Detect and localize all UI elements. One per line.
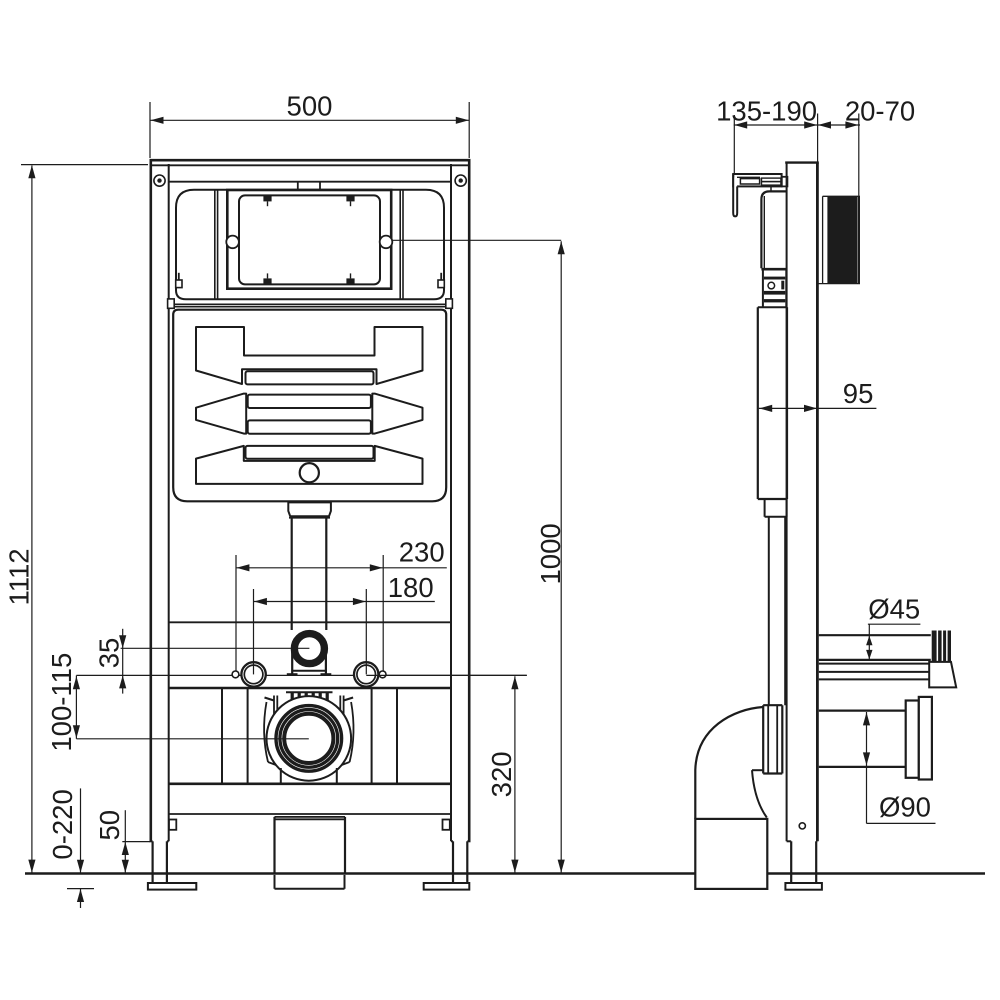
svg-text:320: 320 bbox=[486, 751, 517, 797]
svg-text:100-115: 100-115 bbox=[46, 653, 77, 752]
svg-text:500: 500 bbox=[287, 91, 333, 122]
svg-text:1112: 1112 bbox=[4, 548, 35, 605]
svg-text:Ø45: Ø45 bbox=[868, 593, 920, 624]
svg-text:1000: 1000 bbox=[535, 523, 566, 584]
svg-text:95: 95 bbox=[843, 378, 874, 409]
svg-text:50: 50 bbox=[94, 810, 125, 841]
svg-text:0-220: 0-220 bbox=[47, 789, 78, 859]
svg-text:35: 35 bbox=[93, 638, 124, 669]
svg-text:Ø90: Ø90 bbox=[879, 791, 931, 822]
svg-text:20-70: 20-70 bbox=[845, 95, 915, 126]
svg-text:180: 180 bbox=[388, 572, 434, 603]
svg-text:135-190: 135-190 bbox=[716, 95, 817, 126]
svg-text:230: 230 bbox=[399, 537, 445, 568]
